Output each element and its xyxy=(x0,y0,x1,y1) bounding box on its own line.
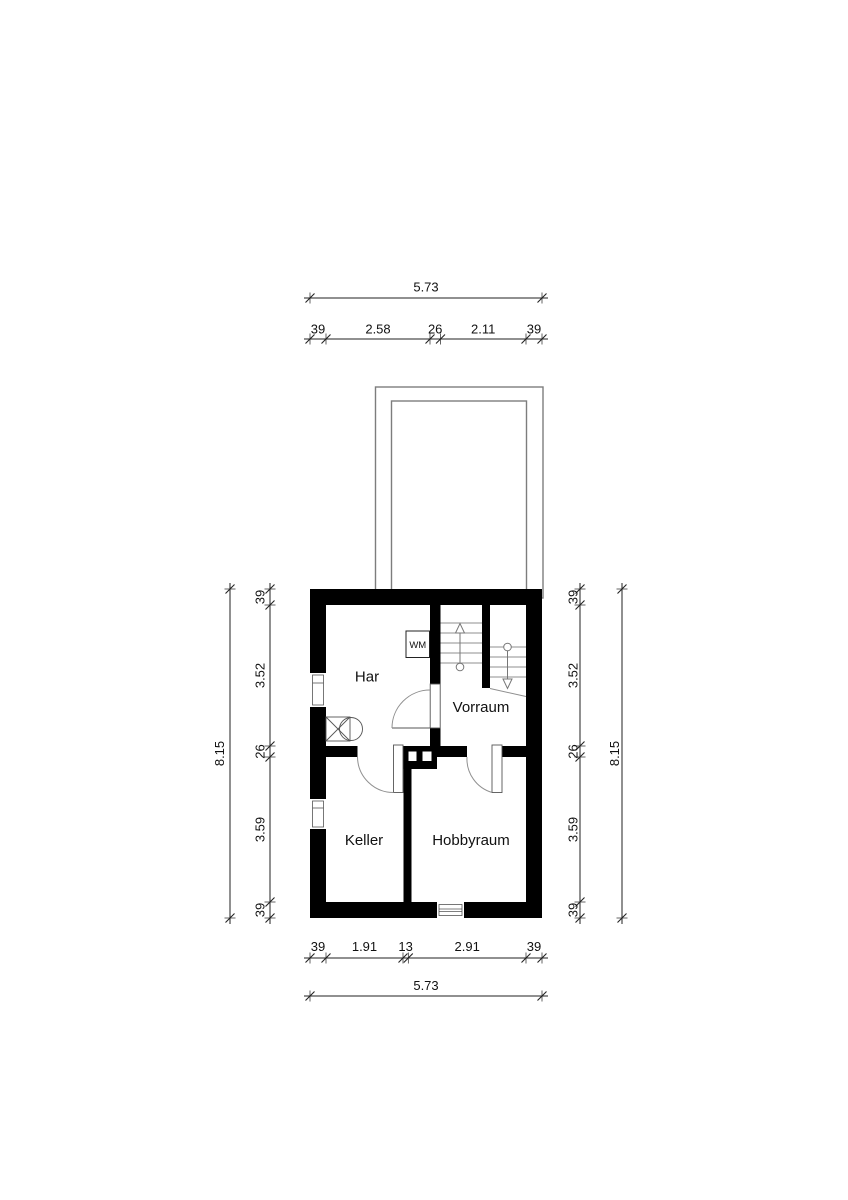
floor-plan-sheet: WM Har Vorraum Keller Hobbyraum 5.73 39 … xyxy=(0,0,848,1200)
dim-top-seg-2: 26 xyxy=(428,322,442,337)
dim-left-overall: 8.15 xyxy=(212,741,227,766)
dim-right-seg-4: 39 xyxy=(566,903,581,917)
dim-left-seg-0: 39 xyxy=(253,590,268,604)
room-label-vorraum: Vorraum xyxy=(453,699,510,716)
dim-right-seg-2: 26 xyxy=(566,744,581,758)
dim-bottom-seg-3: 2.91 xyxy=(455,939,480,954)
dim-top-seg-4: 39 xyxy=(527,322,541,337)
dim-bottom-seg-2: 13 xyxy=(398,939,412,954)
floor-plan-drawing: WM Har Vorraum Keller Hobbyraum 5.73 39 … xyxy=(0,0,848,1200)
dim-right-seg-0: 39 xyxy=(566,590,581,604)
upper-floor-outline xyxy=(376,387,544,598)
dim-bottom-seg-0: 39 xyxy=(311,939,325,954)
dim-bottom-seg-1: 1.91 xyxy=(352,939,377,954)
room-label-har: Har xyxy=(355,669,379,686)
dim-bottom-seg-4: 39 xyxy=(527,939,541,954)
dim-left-seg-4: 39 xyxy=(253,903,268,917)
room-label-keller: Keller xyxy=(345,832,383,849)
dim-left-seg-1: 3.52 xyxy=(253,663,268,688)
stair-middle-wall xyxy=(482,605,490,688)
dim-right-seg-1: 3.52 xyxy=(566,663,581,688)
dim-top-seg-1: 2.58 xyxy=(365,322,390,337)
room-label-hobbyraum: Hobbyraum xyxy=(432,832,510,849)
washing-machine-box: WM xyxy=(406,631,430,658)
dim-right-seg-3: 3.59 xyxy=(566,817,581,842)
dim-right-overall: 8.15 xyxy=(607,741,622,766)
dim-top-seg-0: 39 xyxy=(311,322,325,337)
room-hobbyraum-area xyxy=(412,757,527,902)
washing-machine-label: WM xyxy=(409,640,426,651)
dim-bottom-overall: 5.73 xyxy=(413,978,438,993)
dim-left-seg-3: 3.59 xyxy=(253,817,268,842)
dim-top-overall: 5.73 xyxy=(413,280,438,295)
dim-top-seg-3: 2.11 xyxy=(471,322,495,337)
chimney-block xyxy=(403,746,437,769)
dim-left-seg-2: 26 xyxy=(253,744,268,758)
